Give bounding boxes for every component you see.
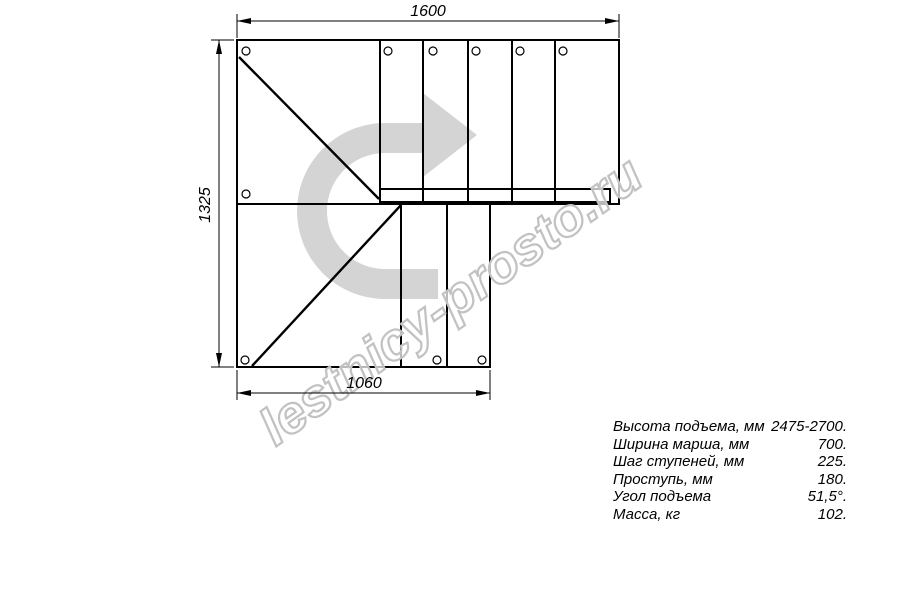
spec-row-tread: Проступь, мм 180. (613, 471, 847, 489)
screw-hole (516, 47, 524, 55)
dimension-arrow-icon (216, 353, 222, 367)
screw-hole (384, 47, 392, 55)
dimension-top: 1600 (237, 3, 619, 38)
spec-row-height: Высота подъема, мм 2475-2700. (613, 418, 847, 436)
dimension-arrow-icon (237, 390, 251, 396)
spec-label: Угол подъема (613, 488, 711, 506)
screw-hole (433, 356, 441, 364)
spec-row-step-rise: Шаг ступеней, мм 225. (613, 453, 847, 471)
spec-label: Ширина марша, мм (613, 436, 749, 454)
specs-table: Высота подъема, мм 2475-2700. Ширина мар… (613, 418, 847, 523)
spec-row-angle: Угол подъема 51,5°. (613, 488, 847, 506)
spec-value: 2475-2700. (771, 418, 847, 436)
spec-row-flight-width: Ширина марша, мм 700. (613, 436, 847, 454)
screw-hole (429, 47, 437, 55)
screw-hole (242, 190, 250, 198)
dimension-bottom-value: 1060 (346, 375, 382, 392)
spec-label: Масса, кг (613, 506, 680, 524)
spec-label: Шаг ступеней, мм (613, 453, 744, 471)
stair-plan-page: lestnicy-prosto.ru 1600 1325 (0, 0, 900, 600)
spec-label: Высота подъема, мм (613, 418, 765, 436)
dimension-arrow-icon (237, 18, 251, 24)
dimension-top-value: 1600 (410, 3, 446, 20)
dimension-arrow-icon (216, 40, 222, 54)
spec-value: 225. (818, 453, 847, 471)
spec-label: Проступь, мм (613, 471, 713, 489)
spec-value: 102. (818, 506, 847, 524)
dimension-arrow-icon (476, 390, 490, 396)
screw-hole (241, 356, 249, 364)
screw-hole (559, 47, 567, 55)
spec-value: 51,5°. (808, 488, 847, 506)
screw-hole (478, 356, 486, 364)
spec-value: 180. (818, 471, 847, 489)
spec-value: 700. (818, 436, 847, 454)
dimension-left: 1325 (197, 40, 234, 367)
spec-row-mass: Масса, кг 102. (613, 506, 847, 524)
screw-hole (472, 47, 480, 55)
screw-hole (242, 47, 250, 55)
dimension-arrow-icon (605, 18, 619, 24)
dimension-left-value: 1325 (197, 187, 214, 223)
